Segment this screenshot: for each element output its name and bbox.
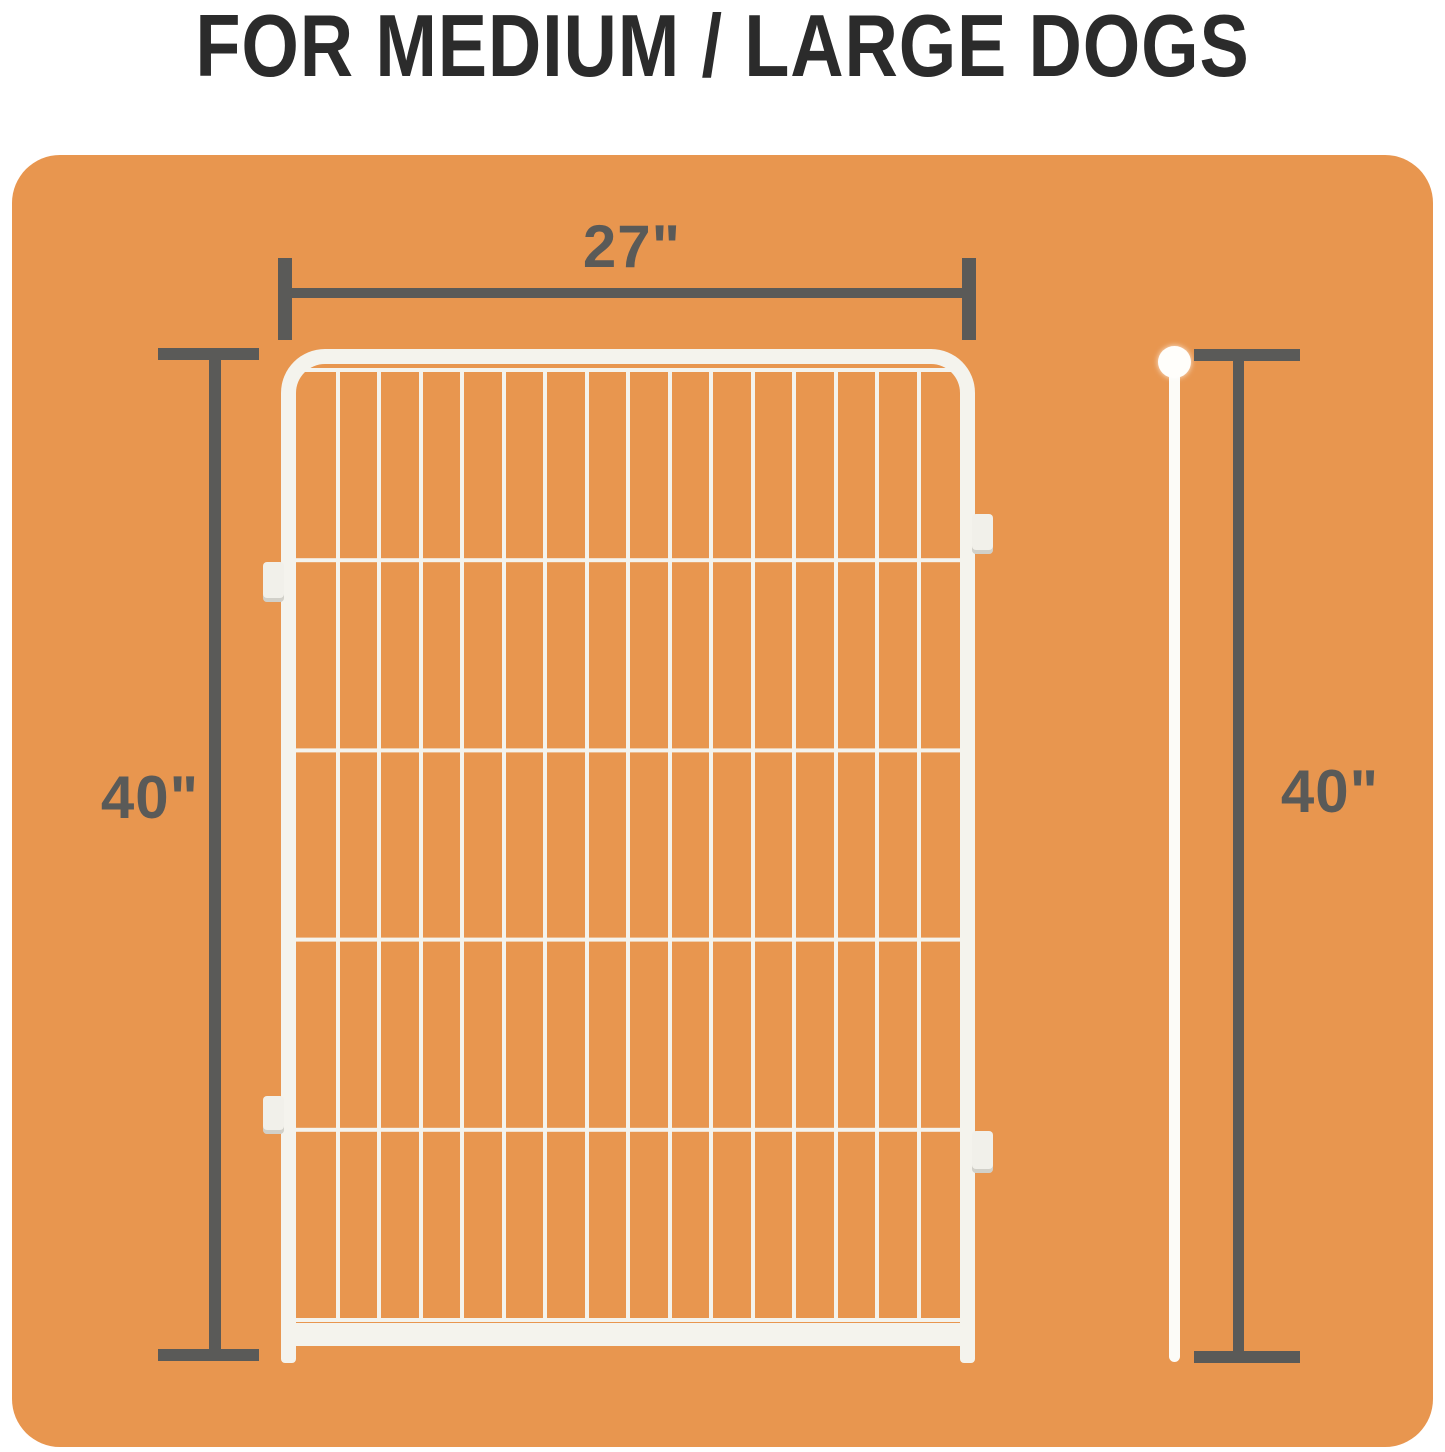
fence-wire-vertical bbox=[336, 368, 340, 1322]
fence-wire-vertical bbox=[419, 368, 423, 1322]
width-dimension-label: 27" bbox=[583, 217, 681, 277]
fence-foot-right bbox=[960, 1341, 975, 1363]
fence-wire-vertical bbox=[585, 368, 589, 1322]
connector-tab-left-bottom bbox=[263, 1096, 284, 1134]
fence-wire-horizontal bbox=[296, 1318, 960, 1322]
height-dimension-left-line bbox=[209, 355, 221, 1355]
fence-wire-horizontal bbox=[296, 938, 960, 942]
fence-wire-horizontal bbox=[296, 748, 960, 752]
height-dimension-right-line bbox=[1233, 355, 1244, 1357]
width-dimension-line bbox=[285, 288, 969, 298]
fence-wire-vertical bbox=[751, 368, 755, 1322]
fence-wire-horizontal bbox=[296, 368, 960, 372]
fence-wire-vertical bbox=[626, 368, 630, 1322]
fence-wire-vertical bbox=[792, 368, 796, 1322]
page-title-text: FOR MEDIUM / LARGE DOGS bbox=[195, 0, 1249, 92]
fence-wire-vertical bbox=[502, 368, 506, 1322]
height-dimension-right-label: 40" bbox=[1281, 762, 1379, 822]
fence-wire-vertical bbox=[875, 368, 879, 1322]
fence-wire-vertical bbox=[460, 368, 464, 1322]
page-title: FOR MEDIUM / LARGE DOGS bbox=[0, 0, 1445, 110]
width-dimension-endcap-left bbox=[278, 258, 292, 340]
fence-wire-horizontal bbox=[296, 1128, 960, 1132]
height-dimension-left-label: 40" bbox=[101, 768, 199, 828]
connector-tab-right-bottom bbox=[972, 1131, 993, 1173]
connector-tab-left-top bbox=[263, 562, 284, 602]
height-dimension-left-endcap-top bbox=[158, 348, 259, 360]
fence-wire-vertical bbox=[668, 368, 672, 1322]
height-dimension-right-endcap-top bbox=[1194, 349, 1300, 361]
fence-bottom-rail bbox=[284, 1323, 972, 1346]
fence-wire-vertical bbox=[377, 368, 381, 1322]
connector-tab-right-top bbox=[972, 514, 993, 554]
width-dimension-endcap-right bbox=[962, 258, 976, 340]
fence-foot-left bbox=[281, 1341, 296, 1363]
fence-wire-vertical bbox=[917, 368, 921, 1322]
fence-wire-vertical bbox=[834, 368, 838, 1322]
measuring-rod bbox=[1169, 362, 1180, 1362]
measuring-rod-ball-icon bbox=[1158, 346, 1191, 378]
fence-grid bbox=[296, 368, 960, 1322]
height-dimension-right-endcap-bottom bbox=[1194, 1351, 1300, 1363]
fence-wire-vertical bbox=[709, 368, 713, 1322]
fence-wire-horizontal bbox=[296, 558, 960, 562]
fence-wire-vertical bbox=[543, 368, 547, 1322]
height-dimension-left-endcap-bottom bbox=[158, 1349, 259, 1361]
